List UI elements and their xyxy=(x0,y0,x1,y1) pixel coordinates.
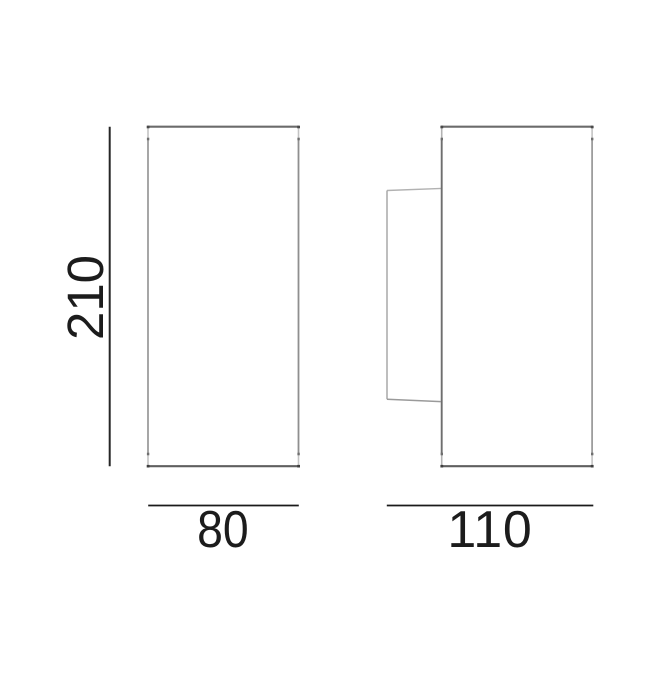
svg-text:110: 110 xyxy=(447,501,532,559)
svg-text:210: 210 xyxy=(57,255,114,340)
svg-text:80: 80 xyxy=(197,502,249,559)
